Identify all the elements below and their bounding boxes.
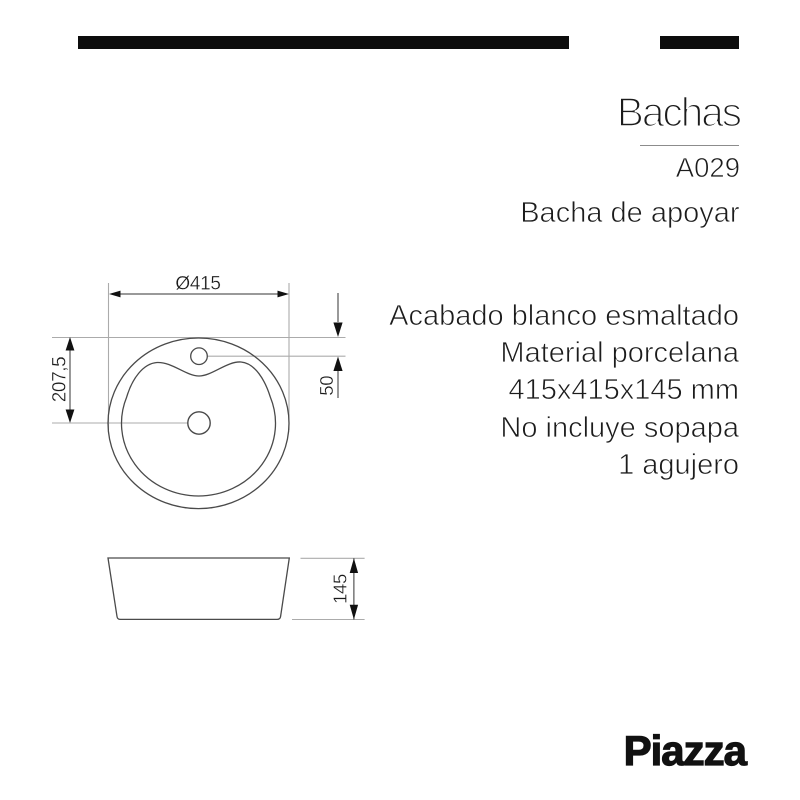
svg-text:207,5: 207,5: [50, 357, 71, 403]
svg-text:50: 50: [316, 376, 337, 396]
svg-text:Ø415: Ø415: [175, 274, 220, 295]
svg-text:145: 145: [330, 574, 351, 604]
